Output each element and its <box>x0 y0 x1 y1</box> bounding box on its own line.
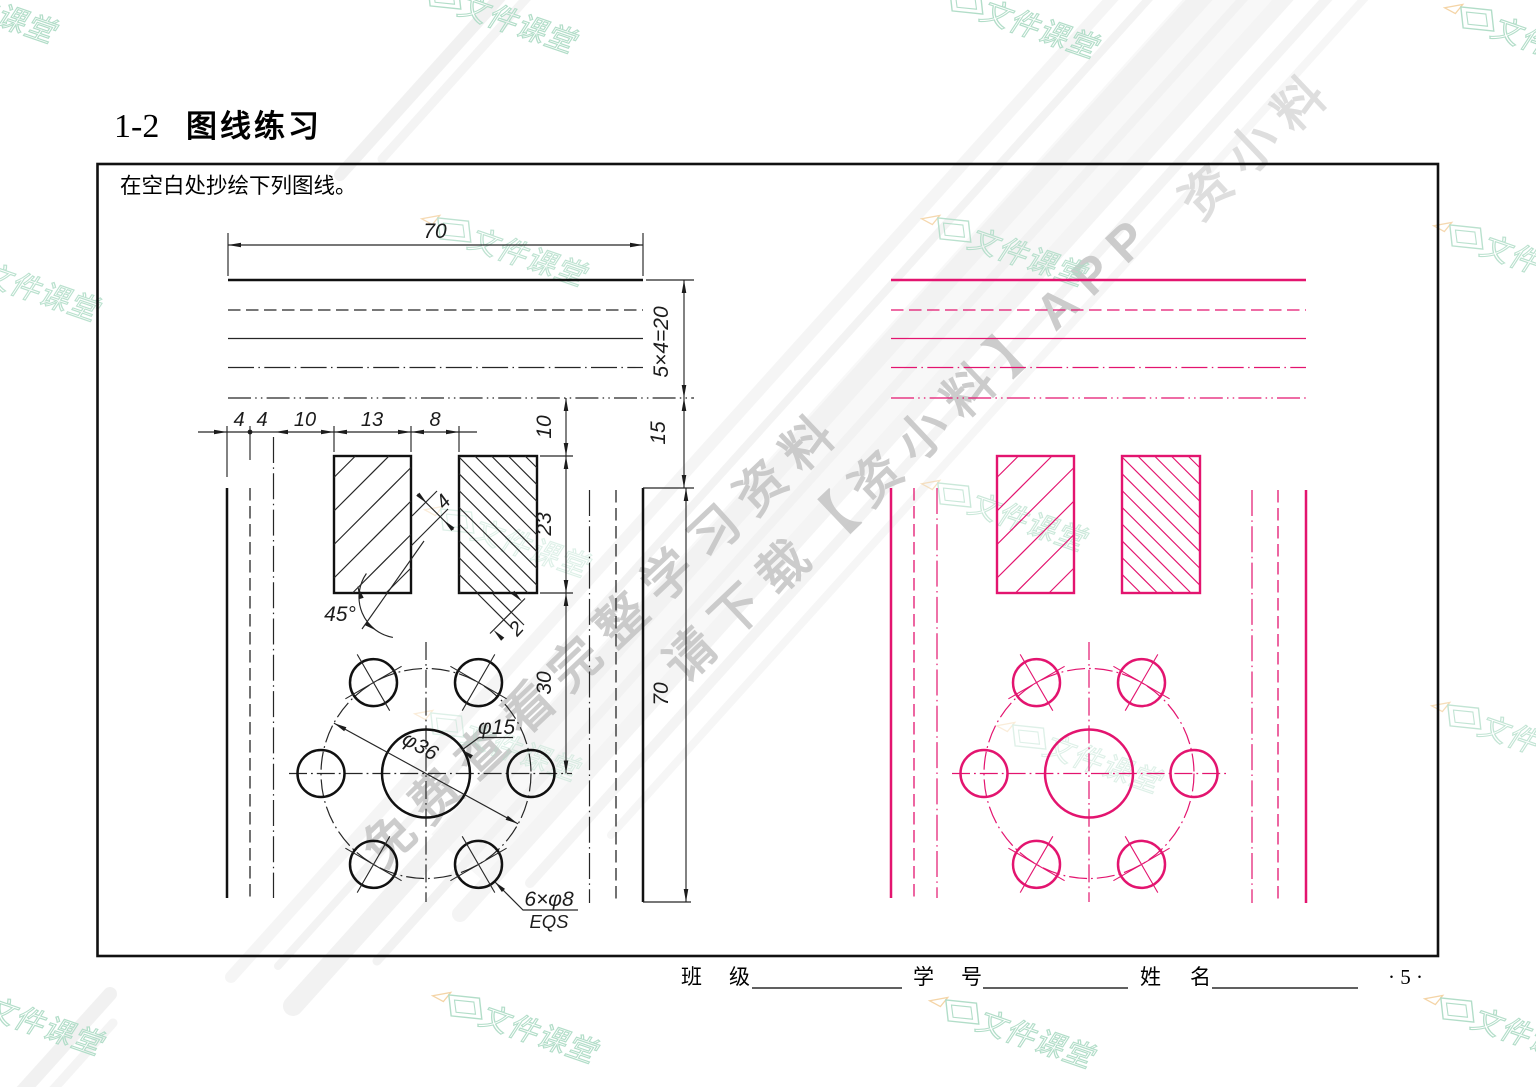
svg-text:30: 30 <box>533 671 556 695</box>
svg-text:名: 名 <box>1190 965 1211 989</box>
svg-text:1-2: 1-2 <box>114 108 159 145</box>
svg-text:4: 4 <box>233 409 244 431</box>
svg-text:45°: 45° <box>324 603 356 626</box>
svg-text:号: 号 <box>961 965 982 989</box>
svg-text:· 5 ·: · 5 · <box>1388 965 1423 989</box>
svg-text:5×4=20: 5×4=20 <box>650 306 673 378</box>
svg-text:70: 70 <box>423 220 447 243</box>
svg-text:班: 班 <box>681 965 702 989</box>
svg-text:23: 23 <box>533 512 556 537</box>
svg-text:在空白处抄绘下列图线。: 在空白处抄绘下列图线。 <box>120 174 357 198</box>
svg-text:级: 级 <box>729 965 750 989</box>
svg-text:10: 10 <box>533 415 556 439</box>
svg-text:φ15: φ15 <box>478 716 515 739</box>
svg-text:姓: 姓 <box>1140 965 1161 989</box>
svg-text:6×φ8: 6×φ8 <box>524 888 574 911</box>
svg-text:4: 4 <box>256 409 267 431</box>
svg-text:70: 70 <box>650 682 673 706</box>
svg-text:学: 学 <box>913 965 934 989</box>
svg-text:10: 10 <box>294 409 316 431</box>
svg-text:图线练习: 图线练习 <box>186 109 322 144</box>
svg-text:13: 13 <box>361 409 383 431</box>
svg-text:15: 15 <box>647 421 670 445</box>
svg-text:EQS: EQS <box>529 911 569 932</box>
svg-text:8: 8 <box>429 409 440 431</box>
